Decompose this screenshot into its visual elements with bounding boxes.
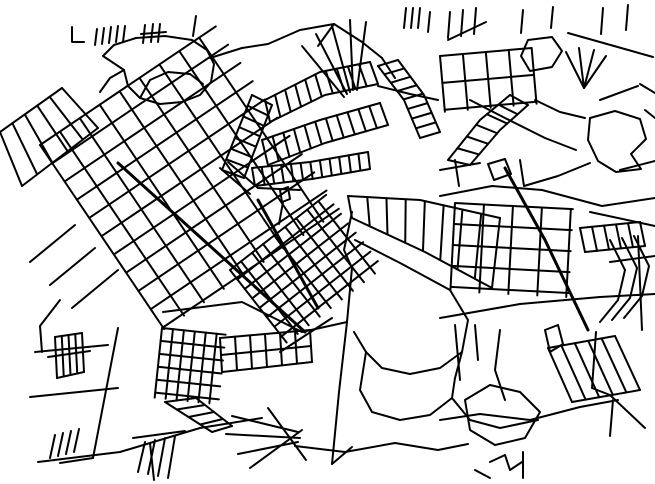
road (420, 132, 440, 138)
road (168, 436, 175, 478)
road (268, 408, 306, 460)
road (386, 198, 387, 234)
road (295, 443, 468, 452)
road (66, 431, 71, 454)
road (352, 218, 492, 288)
road (89, 99, 265, 218)
road (580, 228, 585, 252)
road (520, 160, 524, 186)
road (295, 85, 301, 107)
road (348, 112, 355, 134)
road (209, 334, 216, 404)
road (457, 148, 479, 154)
road (495, 330, 505, 400)
road (337, 115, 344, 137)
road (55, 337, 57, 378)
road (610, 400, 613, 436)
road (100, 70, 124, 92)
road (301, 163, 304, 180)
road (62, 336, 64, 377)
road (508, 206, 513, 294)
road (72, 27, 84, 42)
road (467, 137, 488, 144)
road (50, 248, 95, 285)
road (326, 118, 333, 140)
road (358, 154, 360, 171)
road (212, 426, 232, 432)
road (245, 214, 341, 289)
road (397, 85, 417, 91)
road (524, 163, 590, 186)
road (378, 66, 420, 138)
road (440, 414, 530, 420)
road (487, 114, 507, 123)
road (74, 429, 79, 452)
road (300, 24, 334, 30)
road (440, 56, 445, 112)
road (0, 132, 22, 186)
road (339, 157, 341, 174)
road (368, 152, 370, 169)
road (349, 155, 351, 172)
road (474, 8, 476, 34)
road (318, 201, 375, 273)
road (315, 122, 322, 145)
road (537, 208, 542, 296)
road (188, 331, 195, 401)
road (615, 336, 640, 390)
road (260, 233, 356, 308)
road (600, 86, 638, 100)
road (65, 63, 241, 182)
road (488, 159, 511, 180)
road (423, 201, 425, 251)
road (77, 81, 253, 200)
road (530, 400, 618, 420)
road (123, 26, 125, 42)
road (252, 95, 272, 105)
road (378, 60, 398, 66)
road (265, 334, 267, 367)
road (238, 442, 298, 454)
road (475, 325, 478, 360)
road (310, 162, 312, 179)
road (93, 328, 118, 458)
road (95, 29, 97, 45)
road (252, 253, 309, 325)
road (296, 218, 353, 290)
road (35, 345, 108, 352)
road (332, 447, 352, 464)
road (626, 5, 628, 30)
road (148, 440, 155, 474)
road (616, 224, 621, 248)
road (476, 125, 497, 133)
road (166, 329, 173, 399)
road (38, 418, 262, 462)
road (358, 109, 366, 131)
road (450, 203, 455, 291)
road (628, 223, 633, 247)
road (411, 8, 413, 28)
road (448, 22, 486, 40)
road (241, 261, 298, 333)
road (275, 95, 280, 117)
road (220, 338, 222, 372)
road (295, 331, 297, 363)
road (566, 209, 571, 297)
road (416, 122, 436, 128)
road (158, 438, 165, 476)
road (69, 335, 71, 375)
road (109, 27, 111, 43)
road (315, 74, 322, 96)
road (521, 37, 562, 71)
road (498, 105, 517, 115)
road (418, 8, 420, 28)
road (82, 333, 84, 372)
road (126, 154, 302, 273)
road (359, 64, 367, 86)
road (58, 433, 63, 456)
road (548, 348, 572, 402)
road (521, 10, 523, 33)
road (263, 244, 320, 316)
road (448, 12, 450, 38)
road (52, 45, 228, 164)
road (561, 346, 585, 400)
road (610, 395, 645, 428)
road (40, 26, 216, 145)
road (62, 88, 98, 128)
road (50, 435, 55, 458)
road (348, 196, 352, 218)
road (380, 103, 388, 125)
road (310, 330, 312, 362)
road (116, 26, 118, 42)
road (370, 62, 378, 84)
road (274, 252, 370, 327)
road (177, 405, 205, 410)
road (337, 69, 344, 91)
road (645, 110, 655, 118)
road (334, 24, 382, 58)
road (568, 33, 653, 57)
road (193, 16, 196, 36)
road (40, 300, 60, 352)
road (640, 222, 645, 246)
road (448, 160, 470, 165)
road (475, 470, 490, 478)
street-network-svg (0, 0, 655, 484)
road (440, 205, 443, 260)
road (102, 118, 278, 237)
road (604, 226, 609, 250)
road (404, 8, 406, 28)
map-canvas (0, 0, 655, 484)
road (305, 80, 311, 102)
road (258, 188, 300, 190)
road (428, 12, 430, 32)
road (588, 111, 646, 172)
road (294, 129, 300, 153)
road (232, 416, 298, 432)
road (492, 218, 500, 288)
road (369, 106, 377, 128)
road (592, 227, 597, 251)
road (210, 30, 300, 58)
road (177, 330, 184, 400)
road (198, 333, 205, 403)
road (601, 8, 603, 34)
road (354, 332, 366, 352)
road (165, 398, 196, 402)
road (490, 455, 522, 470)
road (640, 84, 655, 93)
road (412, 113, 432, 119)
road (332, 322, 347, 464)
road (330, 159, 332, 176)
road (285, 90, 291, 112)
road (274, 236, 331, 308)
road (580, 222, 640, 228)
road (455, 160, 459, 186)
road (367, 197, 370, 226)
road (250, 335, 252, 368)
road (235, 337, 237, 371)
road (200, 419, 223, 425)
road (551, 7, 553, 28)
road (602, 338, 627, 392)
road (189, 412, 215, 417)
road (458, 210, 463, 270)
road (103, 36, 214, 104)
road (408, 103, 428, 109)
road (30, 225, 75, 262)
road (72, 270, 118, 308)
road (102, 28, 104, 44)
road (535, 100, 585, 118)
road (305, 125, 311, 148)
road (440, 163, 480, 170)
road (384, 68, 404, 74)
road (155, 328, 162, 398)
road (320, 160, 322, 177)
road (75, 334, 77, 374)
